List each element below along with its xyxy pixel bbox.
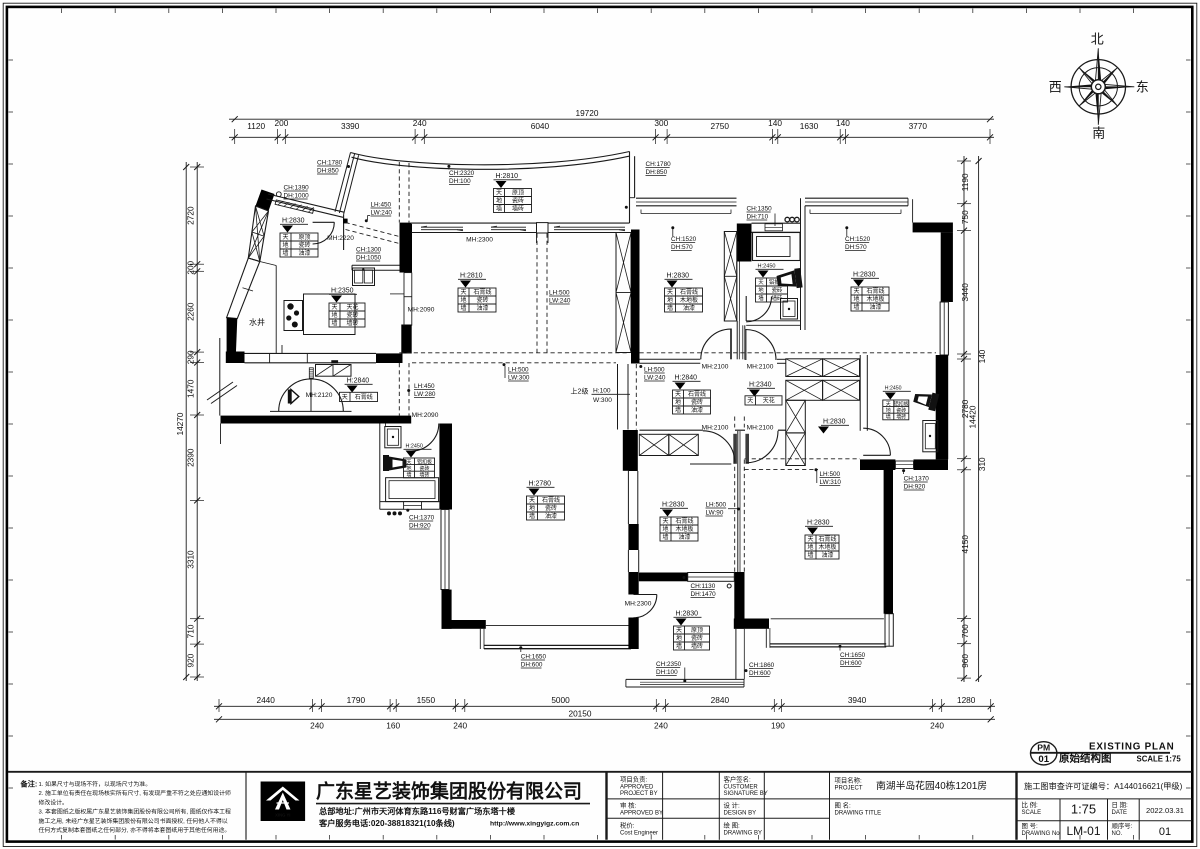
svg-text:2390: 2390 (186, 448, 196, 467)
svg-text:http://www.xingyigz.com.cn: http://www.xingyigz.com.cn (490, 821, 579, 828)
svg-text:铝扣板: 铝扣板 (417, 458, 432, 465)
svg-text:300: 300 (654, 118, 668, 128)
svg-text:LH:500: LH:500 (706, 502, 727, 509)
svg-text:MH:2100: MH:2100 (702, 363, 729, 370)
svg-text:墙: 墙 (406, 472, 411, 479)
svg-text:H:2810: H:2810 (460, 273, 483, 280)
svg-text:H:2830: H:2830 (853, 272, 876, 279)
svg-text:1550: 1550 (417, 695, 436, 705)
svg-text:天花: 天花 (346, 303, 358, 311)
svg-text:石膏线: 石膏线 (675, 517, 693, 525)
svg-text:天: 天 (676, 627, 682, 634)
svg-text:油漆: 油漆 (298, 249, 310, 257)
svg-text:2720: 2720 (186, 206, 196, 225)
svg-text:2440: 2440 (256, 695, 275, 705)
svg-text:施工图审查许可证编号：A144016621(甲级): 施工图审查许可证编号：A144016621(甲级) (1024, 781, 1183, 791)
svg-text:DH:570: DH:570 (845, 244, 867, 251)
svg-text:天: 天 (758, 279, 764, 286)
svg-text:比 例:: 比 例: (1022, 800, 1039, 809)
svg-text:Cost Engineer: Cost Engineer (620, 831, 658, 837)
svg-text:240: 240 (930, 721, 944, 731)
svg-text:水井: 水井 (249, 317, 265, 327)
svg-text:CH:2320: CH:2320 (449, 170, 475, 177)
svg-text:原顶: 原顶 (512, 190, 524, 197)
svg-text:H:2810: H:2810 (496, 173, 519, 180)
svg-text:190: 190 (771, 721, 785, 731)
svg-text:DH:1470: DH:1470 (691, 591, 717, 598)
svg-text:W:300: W:300 (593, 397, 612, 404)
svg-text:石膏线: 石膏线 (866, 287, 884, 295)
svg-text:油漆: 油漆 (683, 304, 695, 312)
svg-text:NO.: NO. (1112, 831, 1123, 837)
svg-text:铝扣板: 铝扣板 (894, 400, 909, 407)
svg-text:墙: 墙 (282, 249, 288, 257)
svg-text:墙: 墙 (331, 319, 337, 327)
svg-text:DH:850: DH:850 (317, 168, 339, 175)
svg-text:墙: 墙 (667, 304, 673, 312)
svg-text:瓷砖: 瓷砖 (346, 311, 358, 319)
svg-text:原顶: 原顶 (298, 234, 310, 241)
svg-text:H:2450: H:2450 (885, 386, 902, 392)
svg-text:01: 01 (1038, 754, 1049, 765)
svg-text:APPROVED BY: APPROVED BY (620, 811, 663, 817)
svg-text:CH:1130: CH:1130 (691, 583, 716, 590)
svg-text:20150: 20150 (568, 709, 591, 719)
svg-text:CH:1350: CH:1350 (747, 206, 773, 213)
svg-text:H:2840: H:2840 (347, 378, 370, 385)
svg-text:地: 地 (853, 295, 859, 303)
svg-text:14270: 14270 (175, 412, 185, 435)
svg-text:H:2450: H:2450 (406, 444, 423, 450)
svg-text:3390: 3390 (341, 121, 360, 131)
svg-text:地: 地 (675, 398, 681, 406)
svg-text:CH:1860: CH:1860 (749, 662, 775, 669)
svg-text:瓷砖: 瓷砖 (419, 465, 429, 472)
svg-text:原顶: 原顶 (691, 627, 703, 634)
svg-text:DATE: DATE (1112, 810, 1128, 816)
svg-text:DH:920: DH:920 (409, 523, 431, 530)
svg-text:DH:1000: DH:1000 (284, 193, 310, 200)
svg-text:地: 地 (460, 296, 466, 304)
svg-text:CH:1520: CH:1520 (845, 236, 871, 243)
svg-text:CH:1370: CH:1370 (904, 476, 930, 483)
svg-text:瓷砖: 瓷砖 (545, 504, 557, 512)
svg-text:地: 地 (676, 634, 682, 642)
svg-text:墙: 墙 (675, 406, 681, 414)
svg-text:油漆: 油漆 (691, 406, 703, 414)
svg-text:H:2830: H:2830 (282, 218, 305, 225)
svg-text:290: 290 (186, 350, 196, 364)
svg-text:西: 西 (1049, 80, 1062, 95)
svg-text:DESIGN BY: DESIGN BY (724, 811, 757, 817)
svg-text:MH:2120: MH:2120 (306, 392, 333, 399)
svg-text:1. 如果尺寸与现场不符，以现场尺寸为准。: 1. 如果尺寸与现场不符，以现场尺寸为准。 (39, 780, 152, 788)
svg-text:240: 240 (453, 721, 467, 731)
svg-text:4150: 4150 (960, 535, 970, 554)
svg-text:2260: 2260 (186, 302, 196, 321)
svg-text:200: 200 (275, 118, 289, 128)
svg-text:MH:2300: MH:2300 (466, 237, 493, 244)
svg-text:1790: 1790 (347, 695, 366, 705)
svg-text:310: 310 (977, 457, 987, 471)
svg-text:地: 地 (758, 286, 764, 294)
svg-text:天: 天 (667, 289, 673, 296)
svg-text:木地板: 木地板 (818, 543, 836, 551)
svg-text:H:2340: H:2340 (749, 382, 772, 389)
svg-text:PROJECT BY: PROJECT BY (620, 791, 658, 797)
svg-text:地: 地 (282, 241, 288, 249)
svg-text:备注:: 备注: (20, 780, 38, 789)
svg-text:XING YI: XING YI (275, 813, 290, 818)
svg-text:木地板: 木地板 (675, 525, 693, 533)
svg-text:LH:500: LH:500 (820, 471, 841, 478)
svg-text:EXISTING PLAN: EXISTING PLAN (1089, 742, 1175, 753)
svg-text:DH:850: DH:850 (646, 169, 668, 176)
svg-text:LW:240: LW:240 (644, 375, 666, 382)
svg-text:5000: 5000 (551, 695, 570, 705)
svg-text:CH:1370: CH:1370 (409, 515, 435, 522)
svg-text:DH:710: DH:710 (747, 214, 769, 221)
svg-text:H:2840: H:2840 (675, 375, 698, 382)
svg-text:SIGNATURE BY: SIGNATURE BY (724, 791, 768, 797)
svg-text:SCALE: SCALE (1022, 810, 1042, 816)
svg-text:墙砖: 墙砖 (419, 472, 429, 479)
svg-text:H:2830: H:2830 (823, 419, 846, 426)
svg-text:地: 地 (886, 407, 891, 414)
svg-text:墙: 墙 (662, 533, 668, 541)
svg-text:墙砖: 墙砖 (346, 319, 358, 327)
svg-text:1190: 1190 (960, 173, 970, 191)
svg-text:瓷砖: 瓷砖 (298, 241, 310, 249)
svg-text:天: 天 (807, 536, 813, 543)
svg-text:瓷砖: 瓷砖 (691, 398, 703, 406)
svg-text:DH:920: DH:920 (904, 484, 926, 491)
svg-text:MH:2100: MH:2100 (747, 363, 774, 370)
svg-text:2750: 2750 (711, 121, 730, 131)
svg-text:东: 东 (1136, 80, 1149, 95)
svg-text:H:2830: H:2830 (807, 520, 830, 527)
svg-text:MH:2090: MH:2090 (408, 307, 435, 314)
svg-text:CUSTOMER: CUSTOMER (724, 785, 759, 791)
svg-text:LW:240: LW:240 (371, 210, 393, 217)
svg-text:3770: 3770 (909, 121, 928, 131)
svg-text:960: 960 (960, 654, 970, 668)
svg-text:240: 240 (413, 118, 427, 128)
svg-text:2022.03.31: 2022.03.31 (1146, 806, 1184, 815)
svg-text:日 期:: 日 期: (1112, 801, 1129, 809)
svg-text:任何方式复制本套图纸之任何部分, 亦不得将本套图纸用于其他任: 任何方式复制本套图纸之任何部分, 亦不得将本套图纸用于其他任何用途。 (39, 826, 231, 834)
svg-text:石膏线: 石膏线 (688, 390, 706, 398)
svg-text:墙砖: 墙砖 (691, 642, 703, 650)
svg-text:DRAWING BY: DRAWING BY (724, 831, 762, 837)
svg-text:绘 图:: 绘 图: (724, 821, 741, 830)
svg-text:H:2780: H:2780 (529, 481, 552, 488)
svg-text:CH:1650: CH:1650 (840, 652, 866, 659)
svg-text:油漆: 油漆 (678, 533, 690, 541)
svg-text:项目名称:: 项目名称: (835, 776, 863, 785)
svg-text:地: 地 (807, 543, 813, 551)
svg-text:天: 天 (662, 518, 668, 525)
svg-text:MH:2100: MH:2100 (747, 424, 774, 431)
svg-text:CH:1300: CH:1300 (356, 247, 382, 254)
svg-text:CH:1650: CH:1650 (521, 654, 547, 661)
svg-text:H:100: H:100 (593, 388, 611, 395)
svg-text:天: 天 (331, 304, 337, 311)
svg-text:1280: 1280 (957, 695, 976, 705)
svg-text:墙: 墙 (529, 512, 535, 520)
svg-text:地: 地 (331, 311, 337, 319)
svg-text:01: 01 (1159, 826, 1171, 838)
svg-text:木地板: 木地板 (680, 296, 698, 304)
svg-text:1120: 1120 (247, 121, 265, 131)
svg-text:瓷砖: 瓷砖 (691, 634, 703, 642)
svg-text:750: 750 (960, 210, 970, 224)
svg-text:天: 天 (675, 391, 681, 398)
svg-text:920: 920 (186, 653, 196, 667)
svg-text:14420: 14420 (968, 405, 978, 428)
svg-text:北: 北 (1091, 32, 1104, 47)
svg-text:天: 天 (496, 190, 502, 197)
svg-text:原始结构图: 原始结构图 (1059, 752, 1112, 765)
svg-text:天: 天 (460, 289, 466, 296)
svg-text:广东星艺装饰集团股份有限公司: 广东星艺装饰集团股份有限公司 (316, 780, 582, 803)
svg-text:墙砖: 墙砖 (896, 414, 906, 421)
svg-text:设 计:: 设 计: (724, 801, 741, 810)
svg-text:MH:2090: MH:2090 (412, 412, 439, 419)
svg-text:2. 施工单位有责任在现场核实所有尺寸, 有发现严重不符之处: 2. 施工单位有责任在现场核实所有尺寸, 有发现严重不符之处应通知设计师 (39, 789, 232, 797)
svg-text:1630: 1630 (800, 121, 819, 131)
svg-text:PROJECT: PROJECT (835, 786, 863, 792)
svg-text:墙: 墙 (496, 205, 502, 213)
svg-text:天: 天 (342, 394, 348, 401)
svg-text:审 核:: 审 核: (620, 801, 637, 810)
svg-text:6040: 6040 (531, 121, 550, 131)
svg-text:油漆: 油漆 (476, 304, 488, 312)
svg-text:1:75: 1:75 (1071, 802, 1096, 817)
svg-text:MH:2300: MH:2300 (625, 601, 652, 608)
svg-text:地: 地 (667, 296, 673, 304)
svg-text:天: 天 (886, 401, 891, 407)
svg-text:CH:1780: CH:1780 (646, 161, 672, 168)
svg-text:地: 地 (406, 465, 411, 472)
svg-text:140: 140 (977, 349, 987, 363)
svg-text:LH:450: LH:450 (371, 202, 392, 209)
svg-text:天: 天 (747, 398, 753, 405)
svg-text:710: 710 (186, 624, 196, 638)
svg-text:油漆: 油漆 (821, 551, 833, 559)
svg-text:DH:100: DH:100 (656, 669, 678, 676)
svg-text:LW:240: LW:240 (549, 298, 571, 305)
svg-text:CH:1520: CH:1520 (671, 236, 697, 243)
svg-text:LH:500: LH:500 (644, 367, 665, 374)
svg-text:石膏线: 石膏线 (680, 288, 698, 296)
svg-text:图 号:: 图 号: (1022, 822, 1039, 830)
svg-text:MH:2100: MH:2100 (702, 424, 729, 431)
svg-text:天: 天 (282, 234, 288, 241)
svg-text:DH:600: DH:600 (840, 660, 862, 667)
svg-text:140: 140 (836, 118, 850, 128)
svg-text:瓷砖: 瓷砖 (896, 407, 906, 414)
svg-text:瓷砖: 瓷砖 (476, 296, 488, 304)
svg-text:地: 地 (529, 504, 535, 512)
svg-text:CH:1780: CH:1780 (317, 160, 343, 167)
svg-text:LH:500: LH:500 (549, 290, 570, 297)
svg-text:H:2350: H:2350 (331, 288, 354, 295)
svg-text:总部地址:广州市天河体育东路116号财富广场东塔十楼: 总部地址:广州市天河体育东路116号财富广场东塔十楼 (319, 806, 516, 816)
svg-text:图 名:: 图 名: (835, 801, 852, 810)
svg-text:税价:: 税价: (620, 821, 635, 830)
svg-text:墙: 墙 (460, 304, 466, 312)
svg-text:天: 天 (529, 497, 535, 504)
svg-text:LW:310: LW:310 (820, 479, 842, 486)
svg-text:DRAWING TITLE: DRAWING TITLE (835, 811, 882, 817)
svg-text:地: 地 (662, 525, 668, 533)
svg-text:LH:450: LH:450 (414, 383, 435, 390)
svg-text:LW:300: LW:300 (508, 375, 530, 382)
svg-text:PM: PM (1037, 743, 1050, 753)
svg-text:H:2830: H:2830 (662, 502, 685, 509)
svg-text:LM-01: LM-01 (1066, 824, 1100, 838)
svg-text:石膏线: 石膏线 (473, 288, 491, 296)
svg-text:DH:570: DH:570 (671, 244, 693, 251)
svg-text:客户服务电话:020-38818321(10条线): 客户服务电话:020-38818321(10条线) (318, 818, 455, 828)
svg-text:H:2450: H:2450 (758, 264, 776, 270)
svg-text:瓷砖: 瓷砖 (772, 286, 783, 294)
svg-text:油漆: 油漆 (869, 303, 881, 311)
svg-text:墙砖: 墙砖 (512, 205, 524, 213)
svg-text:南湖半岛花园40栋1201房: 南湖半岛花园40栋1201房 (876, 779, 987, 792)
svg-text:DH:100: DH:100 (449, 178, 471, 185)
svg-text:天花: 天花 (763, 397, 775, 405)
svg-text:MH:2220: MH:2220 (327, 235, 354, 242)
svg-text:LW:90: LW:90 (706, 510, 724, 517)
svg-text:天: 天 (406, 459, 411, 465)
svg-text:墙: 墙 (853, 303, 859, 311)
svg-text:墙砖: 墙砖 (772, 294, 783, 302)
svg-text:修改设计。: 修改设计。 (39, 798, 68, 806)
svg-text:140: 140 (768, 118, 782, 128)
svg-text:天: 天 (853, 288, 859, 295)
svg-text:项目负责:: 项目负责: (620, 775, 648, 784)
svg-text:200: 200 (186, 260, 196, 274)
svg-text:240: 240 (310, 721, 324, 731)
svg-text:DRAWING No: DRAWING No (1022, 831, 1061, 837)
svg-text:2840: 2840 (711, 695, 730, 705)
svg-text:DH:600: DH:600 (521, 662, 543, 669)
svg-text:19720: 19720 (575, 108, 598, 118)
svg-text:LW:280: LW:280 (414, 391, 436, 398)
svg-text:瓷砖: 瓷砖 (512, 197, 524, 205)
svg-text:3310: 3310 (186, 550, 196, 569)
svg-text:上2级: 上2级 (571, 387, 589, 396)
svg-text:APPROVED: APPROVED (620, 785, 654, 791)
svg-text:客户签名:: 客户签名: (724, 775, 752, 784)
svg-text:H:2830: H:2830 (676, 611, 699, 618)
svg-text:石膏线: 石膏线 (355, 393, 373, 401)
svg-text:CH:2350: CH:2350 (656, 661, 682, 668)
svg-text:顺序号:: 顺序号: (1112, 821, 1133, 830)
svg-text:地: 地 (496, 197, 502, 205)
svg-text:3940: 3940 (848, 695, 867, 705)
svg-text:南: 南 (1092, 126, 1105, 141)
svg-text:CH:1390: CH:1390 (284, 185, 310, 192)
svg-text:160: 160 (386, 721, 400, 731)
svg-text:3440: 3440 (960, 283, 970, 302)
svg-text:油漆: 油漆 (545, 512, 557, 520)
svg-text:H:2830: H:2830 (667, 273, 690, 280)
svg-text:SCALE 1:75: SCALE 1:75 (1137, 755, 1182, 764)
svg-text:墙: 墙 (886, 414, 891, 421)
svg-text:DH:1050: DH:1050 (356, 255, 382, 262)
svg-text:LH:500: LH:500 (508, 367, 529, 374)
svg-text:木地板: 木地板 (866, 295, 884, 303)
svg-text:1470: 1470 (186, 379, 196, 398)
svg-text:700: 700 (960, 624, 970, 638)
svg-text:240: 240 (654, 721, 668, 731)
svg-text:施工之用, 未经广东星艺装饰集团股份有限公司书面授权, 任何: 施工之用, 未经广东星艺装饰集团股份有限公司书面授权, 任何他人不得以 (39, 817, 228, 825)
svg-text:墙: 墙 (807, 551, 813, 559)
svg-text:墙: 墙 (758, 294, 764, 302)
svg-text:墙: 墙 (676, 642, 682, 650)
svg-text:DH:600: DH:600 (749, 670, 771, 677)
svg-text:3. 本套图纸之版权属广东星艺装饰集团股份有限公司所有, 图: 3. 本套图纸之版权属广东星艺装饰集团股份有限公司所有, 图纸仅作本工程 (39, 808, 232, 816)
svg-text:石膏线: 石膏线 (542, 496, 560, 504)
svg-text:石膏线: 石膏线 (818, 535, 836, 543)
